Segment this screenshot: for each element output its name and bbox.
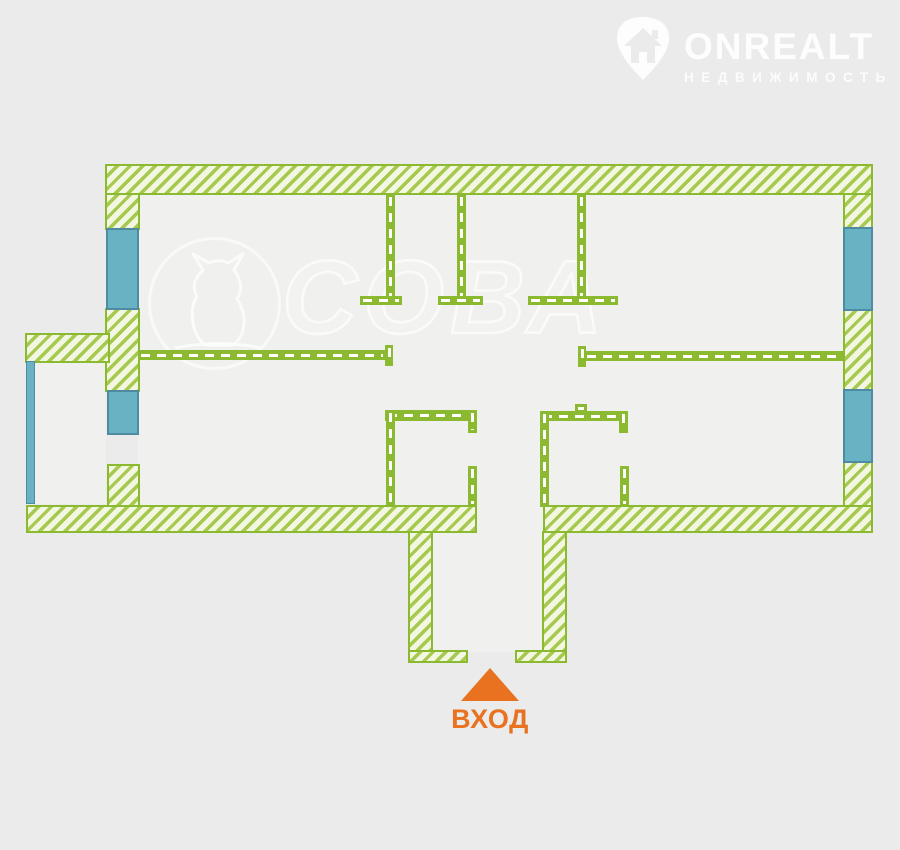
room-left-wall-side — [386, 410, 395, 507]
outer-wall-right-lower — [843, 461, 873, 507]
room-right-stub-lower — [620, 466, 629, 507]
outer-wall-left-mid — [105, 308, 140, 392]
onrealt-logo: ONREALT НЕДВИЖИМОСТЬ — [612, 16, 893, 85]
room-left-stub-upper — [468, 410, 477, 433]
outer-wall-left-lower — [107, 464, 140, 507]
room-right-wall-side — [540, 411, 549, 507]
entrance-arrow-icon — [461, 668, 519, 701]
interior-entry-hall — [433, 531, 542, 652]
logo-subtitle: НЕДВИЖИМОСТЬ — [684, 71, 893, 85]
logo-text: ONREALT — [684, 28, 893, 65]
entry-wall-right-foot — [515, 650, 567, 663]
interior-balcony — [34, 361, 106, 504]
window-left-upper — [106, 228, 139, 310]
owl-icon — [165, 248, 265, 360]
partition-top-2 — [457, 194, 466, 303]
mid-wall-right — [584, 351, 843, 361]
partition-top-1 — [386, 194, 395, 303]
partition-foot-3 — [528, 296, 618, 305]
room-left-wall-top — [385, 410, 477, 421]
room-left-stub-lower — [468, 466, 477, 507]
room-right-stub-upper — [619, 411, 628, 433]
outer-wall-bottom-left — [26, 505, 477, 533]
floorplan-image: СОВА ONREALT НЕДВИЖИМОСТЬ ВХОД — [0, 0, 900, 850]
outer-wall-left-upper — [105, 193, 140, 230]
partition-foot-1 — [360, 296, 402, 305]
partition-top-3 — [577, 194, 586, 303]
window-right-upper — [843, 227, 873, 311]
mid-wall-left — [138, 350, 386, 360]
window-left-lower — [107, 390, 139, 435]
mid-wall-left-cap — [385, 345, 393, 366]
entry-wall-left — [408, 531, 433, 663]
entry-wall-right — [542, 531, 567, 663]
window-right-lower — [843, 389, 873, 463]
outer-wall-right-mid — [843, 309, 873, 391]
balcony-wall-top — [25, 333, 110, 363]
outer-wall-bottom-right — [543, 505, 873, 533]
entrance-label: ВХОД — [430, 704, 550, 735]
window-balcony — [26, 361, 35, 504]
entry-wall-left-foot — [408, 650, 468, 663]
outer-wall-right-upper — [843, 193, 873, 229]
room-right-wall-top — [540, 411, 628, 421]
partition-foot-2 — [438, 296, 483, 305]
room-right-nub — [575, 404, 587, 412]
map-pin-house-icon — [612, 16, 674, 82]
outer-wall-top — [105, 164, 873, 195]
